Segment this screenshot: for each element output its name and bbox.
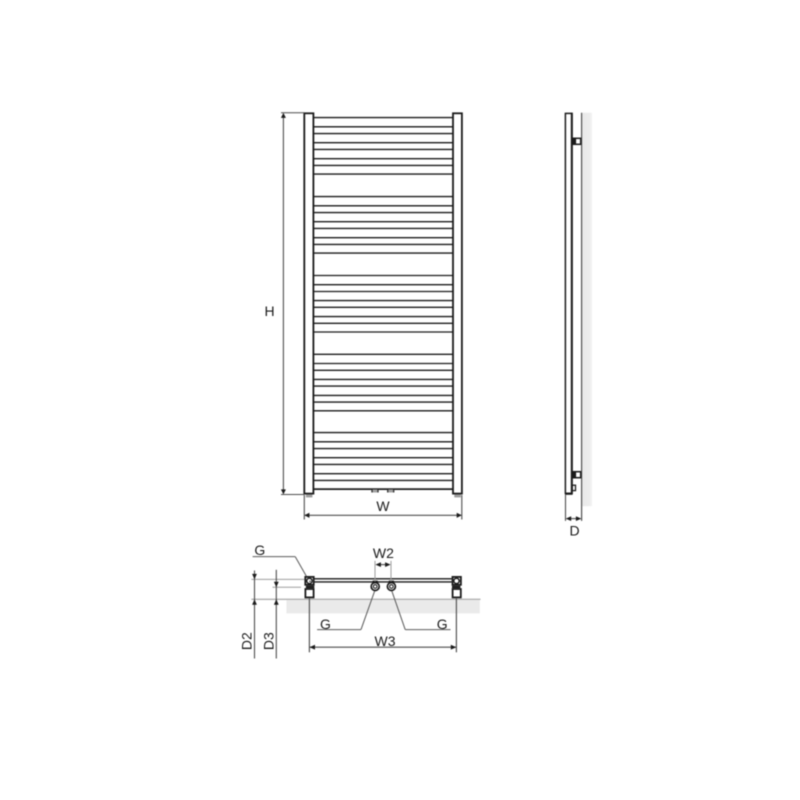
svg-text:W2: W2 <box>373 545 394 561</box>
svg-text:D: D <box>570 523 580 539</box>
svg-text:D3: D3 <box>261 632 277 650</box>
svg-text:D2: D2 <box>238 632 254 650</box>
svg-text:H: H <box>264 303 274 319</box>
svg-text:W: W <box>376 498 390 514</box>
svg-text:G: G <box>254 542 265 558</box>
svg-text:W3: W3 <box>375 633 396 649</box>
